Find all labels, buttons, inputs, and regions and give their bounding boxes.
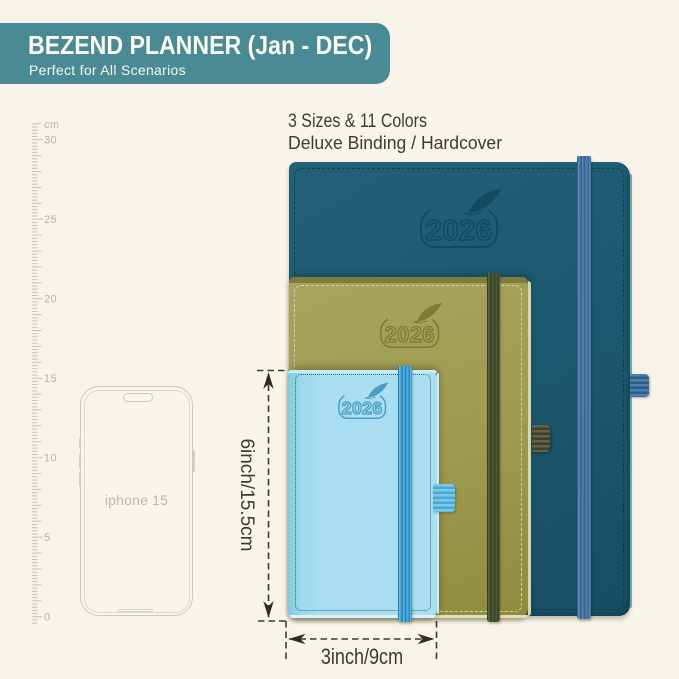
svg-text:2026: 2026 xyxy=(385,322,435,347)
svg-text:5: 5 xyxy=(44,532,51,544)
svg-text:cm: cm xyxy=(44,119,59,131)
svg-text:25: 25 xyxy=(44,214,57,226)
svg-text:2026: 2026 xyxy=(426,215,493,247)
svg-text:30: 30 xyxy=(44,135,57,147)
svg-text:15: 15 xyxy=(44,373,57,385)
svg-text:0: 0 xyxy=(44,612,51,624)
svg-text:2026: 2026 xyxy=(342,398,383,418)
svg-text:10: 10 xyxy=(44,453,57,465)
svg-text:20: 20 xyxy=(44,294,57,306)
